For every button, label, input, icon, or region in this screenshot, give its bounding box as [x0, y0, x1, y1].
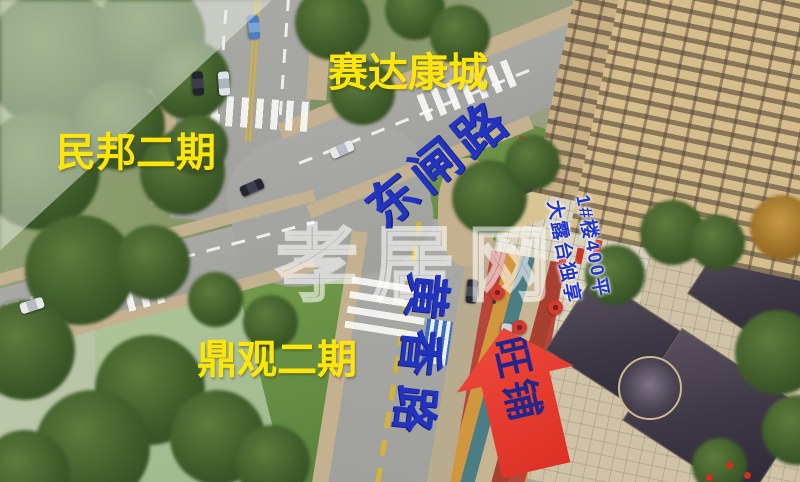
- red-umbrella: [512, 320, 527, 335]
- car: [218, 71, 231, 96]
- car: [192, 71, 205, 96]
- area-label-dingguan-phase2: 鼎观二期: [197, 327, 357, 385]
- aerial-map: 孝居网 赛达康城 民邦二期 鼎观二期 东闸路 黄香路 1#楼400平 大露台独享…: [0, 0, 800, 482]
- area-label-saidakangcheng: 赛达康城: [328, 40, 488, 98]
- gazebo-roof: [618, 356, 682, 420]
- tree: [188, 272, 243, 327]
- red-lantern: [706, 474, 713, 481]
- red-lantern: [744, 472, 751, 479]
- tree: [115, 225, 190, 300]
- red-lantern: [726, 462, 733, 469]
- area-label-minbang-phase2: 民邦二期: [56, 120, 216, 178]
- tree: [690, 215, 745, 270]
